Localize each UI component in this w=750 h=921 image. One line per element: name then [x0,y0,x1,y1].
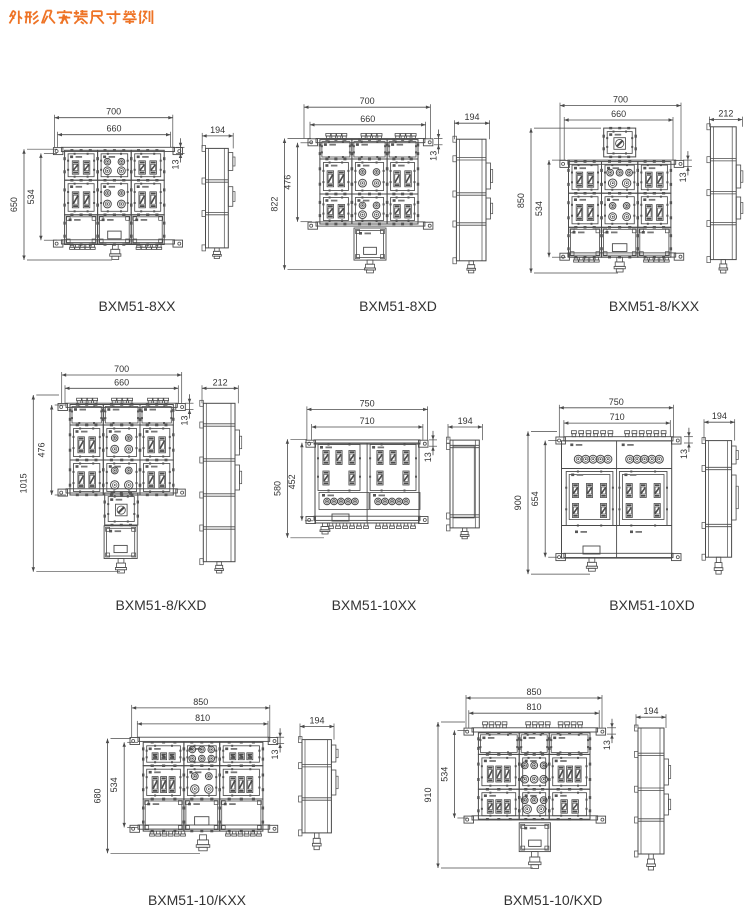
svg-text:750: 750 [360,398,375,408]
svg-text:BXM51-10/KXD: BXM51-10/KXD [504,892,603,908]
svg-text:700: 700 [360,96,375,106]
svg-text:660: 660 [114,377,129,387]
svg-text:476: 476 [283,175,293,190]
svg-text:660: 660 [360,114,375,124]
svg-text:194: 194 [464,112,479,122]
svg-text:710: 710 [610,412,625,422]
svg-text:660: 660 [106,124,121,134]
svg-text:700: 700 [114,364,129,374]
svg-text:212: 212 [213,377,228,387]
svg-text:13: 13 [180,415,190,425]
svg-text:194: 194 [643,706,658,716]
svg-text:810: 810 [526,702,541,712]
svg-text:BXM51-10XD: BXM51-10XD [609,597,695,613]
svg-text:13: 13 [429,151,439,161]
svg-text:194: 194 [458,416,473,426]
svg-text:BXM51-8XD: BXM51-8XD [359,298,437,314]
svg-text:700: 700 [613,95,628,105]
svg-text:BXM51-8XX: BXM51-8XX [98,298,176,314]
svg-text:534: 534 [109,777,119,792]
svg-text:654: 654 [530,491,540,506]
svg-text:194: 194 [712,411,727,421]
svg-text:580: 580 [272,481,282,496]
svg-text:194: 194 [309,716,324,726]
svg-text:850: 850 [516,193,526,208]
svg-text:13: 13 [678,172,688,182]
svg-text:650: 650 [9,197,19,212]
svg-text:534: 534 [534,201,544,216]
svg-text:850: 850 [526,687,541,697]
svg-text:13: 13 [679,449,689,459]
svg-text:BXM51-8/KXD: BXM51-8/KXD [115,597,206,613]
svg-text:13: 13 [171,159,181,169]
svg-text:476: 476 [37,442,47,457]
svg-text:710: 710 [360,416,375,426]
svg-text:BXM51-10XX: BXM51-10XX [332,597,417,613]
svg-text:910: 910 [423,787,433,802]
svg-text:810: 810 [195,713,210,723]
svg-text:212: 212 [718,109,733,119]
svg-text:194: 194 [210,125,225,135]
svg-text:700: 700 [106,107,121,117]
svg-text:13: 13 [602,740,612,750]
svg-text:452: 452 [287,474,297,489]
svg-text:822: 822 [270,197,280,212]
svg-text:750: 750 [609,397,624,407]
svg-text:660: 660 [611,109,626,119]
svg-text:1015: 1015 [18,473,28,493]
svg-text:13: 13 [423,452,433,462]
svg-text:680: 680 [93,788,103,803]
svg-text:534: 534 [26,189,36,204]
svg-text:BXM51-10/KXX: BXM51-10/KXX [148,892,247,908]
svg-text:BXM51-8/KXX: BXM51-8/KXX [609,298,700,314]
svg-text:13: 13 [270,749,280,759]
svg-text:900: 900 [513,495,523,510]
svg-text:850: 850 [193,697,208,707]
svg-text:534: 534 [439,767,449,782]
